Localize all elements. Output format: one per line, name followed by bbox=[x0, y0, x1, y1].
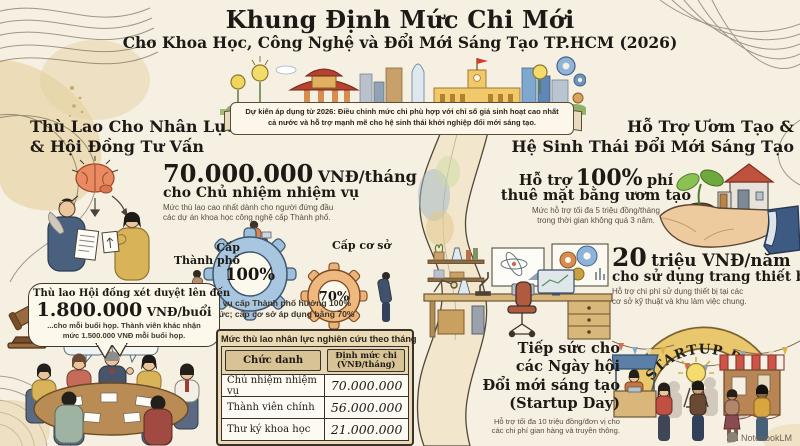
house-icon bbox=[718, 164, 773, 210]
council-fee-note2: mức 1.500.000 VNĐ mỗi buổi họp. bbox=[33, 331, 215, 341]
pushing-figure-illustration bbox=[377, 272, 392, 322]
startup-line3: Đổi mới sáng tạo bbox=[448, 377, 620, 395]
salary-table-card: Mức thù lao nhân lực nghiên cứu theo thá… bbox=[216, 329, 414, 446]
startup-line4: (Startup Day) bbox=[448, 395, 620, 413]
banner-line1: Dự kiến áp dụng từ 2026: Điều chỉnh mức … bbox=[231, 106, 573, 117]
female-researcher-figure bbox=[102, 212, 149, 280]
base-gear-label: Cấp cơ sở bbox=[332, 240, 391, 253]
lab-desk-illustration bbox=[420, 222, 616, 344]
watermark: NotebookLM bbox=[727, 432, 792, 443]
page-title: Khung Định Mức Chi Mới bbox=[0, 5, 800, 34]
visitor-figure bbox=[690, 380, 706, 441]
shelf-icon bbox=[428, 245, 484, 282]
flag-icon bbox=[477, 58, 488, 64]
table-col-amount: Định mức chi (VNĐ/tháng) bbox=[327, 349, 405, 372]
banner-line2: cả nước và hỗ trợ mạnh mẽ cho hệ sinh th… bbox=[231, 117, 573, 128]
council-fee-note1: ...cho mỗi buổi họp. Thành viên khác nhậ… bbox=[33, 321, 215, 331]
equipment-amount: 20 bbox=[612, 243, 647, 272]
brain-icon bbox=[72, 156, 118, 193]
salary-unit: VNĐ/tháng bbox=[318, 167, 417, 186]
council-fee-bubble: Thù lao Hội đồng xét duyệt lên đến 1.800… bbox=[28, 283, 220, 347]
drawer-unit-icon bbox=[568, 301, 610, 339]
monitor-icon bbox=[538, 270, 574, 296]
startup-desc-line2: các chi phí gian hàng và truyền thông. bbox=[448, 426, 620, 436]
city-gear-value: 100% bbox=[225, 265, 275, 284]
visitor-figure bbox=[656, 382, 672, 441]
infographic-canvas: Khung Định Mức Chi Mới Cho Khoa Học, Côn… bbox=[0, 0, 800, 446]
researchers-brain-illustration bbox=[20, 156, 170, 292]
flask-icon bbox=[458, 280, 470, 294]
startup-day-illustration: STARTUP DAY bbox=[612, 303, 800, 445]
intro-banner: Dự kiến áp dụng từ 2026: Điều chỉnh mức … bbox=[230, 102, 574, 135]
salary-table-title: Mức thù lao nhân lực nghiên cứu theo thá… bbox=[221, 334, 409, 344]
bubble-tail bbox=[92, 343, 136, 361]
council-fee-unit: VNĐ/buổi bbox=[147, 305, 212, 319]
cloud-icon bbox=[276, 66, 296, 74]
atom-poster-icon bbox=[492, 248, 544, 286]
table-header-row: Chức danh Định mức chi (VNĐ/tháng) bbox=[222, 347, 408, 374]
male-researcher-figure bbox=[48, 198, 99, 271]
salary-highlight: 70.000.000 VNĐ/tháng cho Chủ nhiệm nhiệm… bbox=[163, 159, 433, 224]
left-heading-line2: & Hội Đồng Tư Vấn bbox=[30, 137, 236, 157]
startup-line1: Tiếp sức cho bbox=[448, 340, 620, 358]
city-gear-label-line2: Thành phố bbox=[150, 255, 240, 268]
startup-line2: các Ngày hội bbox=[448, 358, 620, 376]
box-icon bbox=[438, 310, 464, 334]
table-col-role: Chức danh bbox=[225, 350, 321, 371]
startup-day-block: Tiếp sức cho các Ngày hội Đổi mới sáng t… bbox=[448, 340, 620, 436]
city-gear-label: Cấp Thành phố bbox=[150, 242, 240, 267]
table-row: Thư ký khoa học 21.000.000 bbox=[222, 418, 408, 440]
watermark-label: NotebookLM bbox=[741, 433, 792, 443]
page-subtitle: Cho Khoa Học, Công Nghệ và Đổi Mới Sáng … bbox=[0, 33, 800, 52]
salary-desc-line1: Mức thù lao cao nhất dành cho người đứng… bbox=[163, 203, 433, 213]
equipment-support-block: 20 triệu VNĐ/năm cho sử dụng trang thiết… bbox=[612, 243, 800, 308]
city-gear-label-line1: Cấp bbox=[150, 242, 240, 255]
equipment-desc-line1: Hỗ trợ chi phí sử dụng thiết bị tại các bbox=[612, 287, 800, 297]
cpu-tower-icon bbox=[472, 306, 484, 334]
council-fee-intro: Thù lao Hội đồng xét duyệt lên đến bbox=[33, 288, 215, 299]
salary-table: Chức danh Định mức chi (VNĐ/tháng) Chủ n… bbox=[221, 346, 409, 441]
left-heading-line1: Thù Lao Cho Nhân Lực bbox=[30, 117, 236, 137]
left-section-heading: Thù Lao Cho Nhân Lực & Hội Đồng Tư Vấn bbox=[30, 117, 236, 157]
startup-desc-line1: Hỗ trợ tối đa 10 triệu đồng/đơn vị cho bbox=[448, 417, 620, 427]
hand-house-illustration bbox=[652, 154, 800, 256]
equipment-unit: triệu VNĐ/năm bbox=[651, 251, 790, 270]
microscope-icon bbox=[476, 272, 490, 295]
table-row: Chủ nhiệm nhiệm vụ 70.000.000 bbox=[222, 374, 408, 396]
salary-amount: 70.000.000 bbox=[163, 159, 313, 188]
table-row: Thành viên chính 56.000.000 bbox=[222, 396, 408, 418]
equipment-line2: cho sử dụng trang thiết bị bbox=[612, 269, 800, 285]
council-fee-amount: 1.800.000 bbox=[36, 299, 142, 321]
notebooklm-logo-icon bbox=[727, 432, 738, 443]
